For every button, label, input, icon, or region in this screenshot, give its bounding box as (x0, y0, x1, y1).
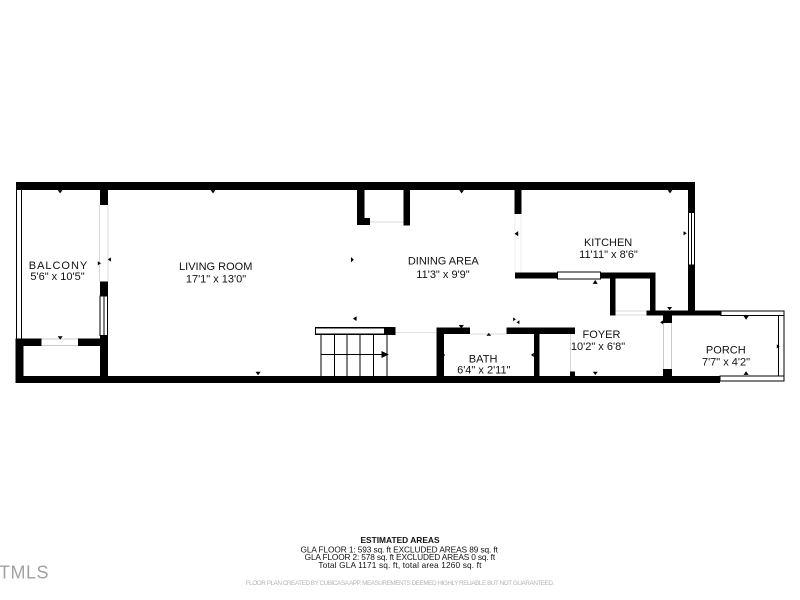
svg-text:11'3" x 9'9": 11'3" x 9'9" (416, 269, 469, 281)
svg-text:KITCHEN: KITCHEN (584, 237, 632, 249)
svg-text:FOYER: FOYER (583, 329, 621, 341)
svg-text:TMLS: TMLS (0, 563, 49, 583)
svg-text:6'4" x 2'11": 6'4" x 2'11" (457, 365, 510, 377)
svg-text:Total GLA 1171 sq. ft, total a: Total GLA 1171 sq. ft, total area 1260 s… (318, 560, 482, 570)
svg-text:17'1" x 13'0": 17'1" x 13'0" (186, 273, 246, 285)
svg-text:BATH: BATH (469, 353, 498, 365)
svg-text:5'6" x 10'5": 5'6" x 10'5" (30, 271, 84, 283)
svg-text:11'11" x 8'6": 11'11" x 8'6" (579, 249, 638, 261)
svg-text:DINING AREA: DINING AREA (408, 255, 480, 267)
svg-text:7'7" x 4'2": 7'7" x 4'2" (702, 356, 750, 368)
svg-text:FLOOR PLAN CREATED BY CUBICASA: FLOOR PLAN CREATED BY CUBICASA APP. MEAS… (246, 580, 555, 587)
svg-text:10'2" x 6'8": 10'2" x 6'8" (571, 341, 625, 353)
svg-text:LIVING ROOM: LIVING ROOM (179, 261, 252, 273)
svg-text:ESTIMATED AREAS: ESTIMATED AREAS (360, 535, 440, 545)
svg-text:PORCH: PORCH (706, 345, 746, 357)
